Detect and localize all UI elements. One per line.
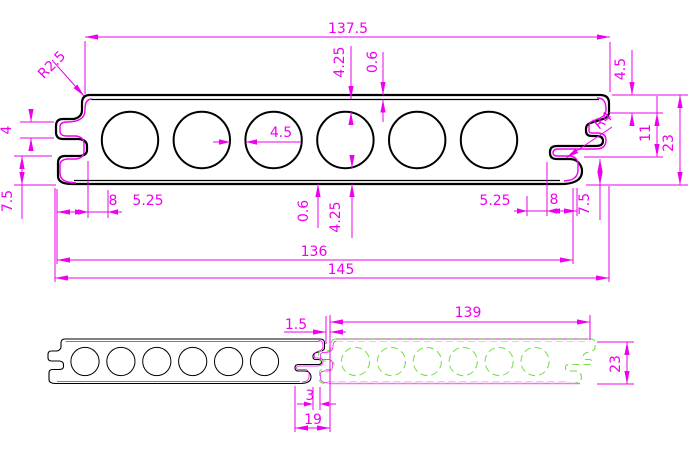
mating-edge-underlay [330,339,588,384]
dim-lap-width: 19 [304,412,322,428]
dim-corner-radius: R2.5 [35,48,69,82]
board-outline [56,95,609,184]
dim-assembly-height: 23 [608,355,624,373]
assembly-view [48,339,595,384]
dim-width-overall: 145 [328,262,355,278]
main-section-view [56,95,609,184]
dim-cover-width: 139 [455,305,482,321]
dim-groove-height: 4 [0,125,15,134]
assembly-board-left [48,339,325,384]
dim-wall-bottom: 4.25 [328,201,344,232]
dim-lip-height-right: 7.5 [577,193,593,215]
dim-width-inner: 136 [301,244,328,260]
assembly-dimensions [284,315,634,432]
dim-web: 4.5 [270,125,292,141]
dim-step-height: 4.5 [613,58,629,80]
dim-wall-top: 4.25 [332,46,348,77]
dim-seg8-left: 8 [109,193,118,209]
dim-tongue-width: 3 [306,388,315,404]
dim-width-top: 137.5 [328,21,368,37]
dim-lip-height-left: 7.5 [0,190,16,212]
dim-gap: 1.5 [285,317,307,333]
dim-total-height: 23 [661,134,677,152]
technical-drawing-page: 137.5 4.25 0.6 R2.5 4.5 11 23 R4 4 7.5 8… [0,0,699,463]
dim-seg525-right: 5.25 [479,193,510,209]
dim-seg8-right: 8 [550,192,559,208]
dim-seg525-left: 5.25 [132,193,163,209]
assembly-board-right [319,339,596,384]
assembly-dimension-labels: 1.5 139 23 3 19 [285,305,624,428]
decking-profile-drawing: 137.5 4.25 0.6 R2.5 4.5 11 23 R4 4 7.5 8… [0,0,699,463]
dim-skin-top: 0.6 [365,51,381,73]
dim-edge-height: 11 [638,124,654,142]
dim-skin-bottom: 0.6 [296,200,312,222]
